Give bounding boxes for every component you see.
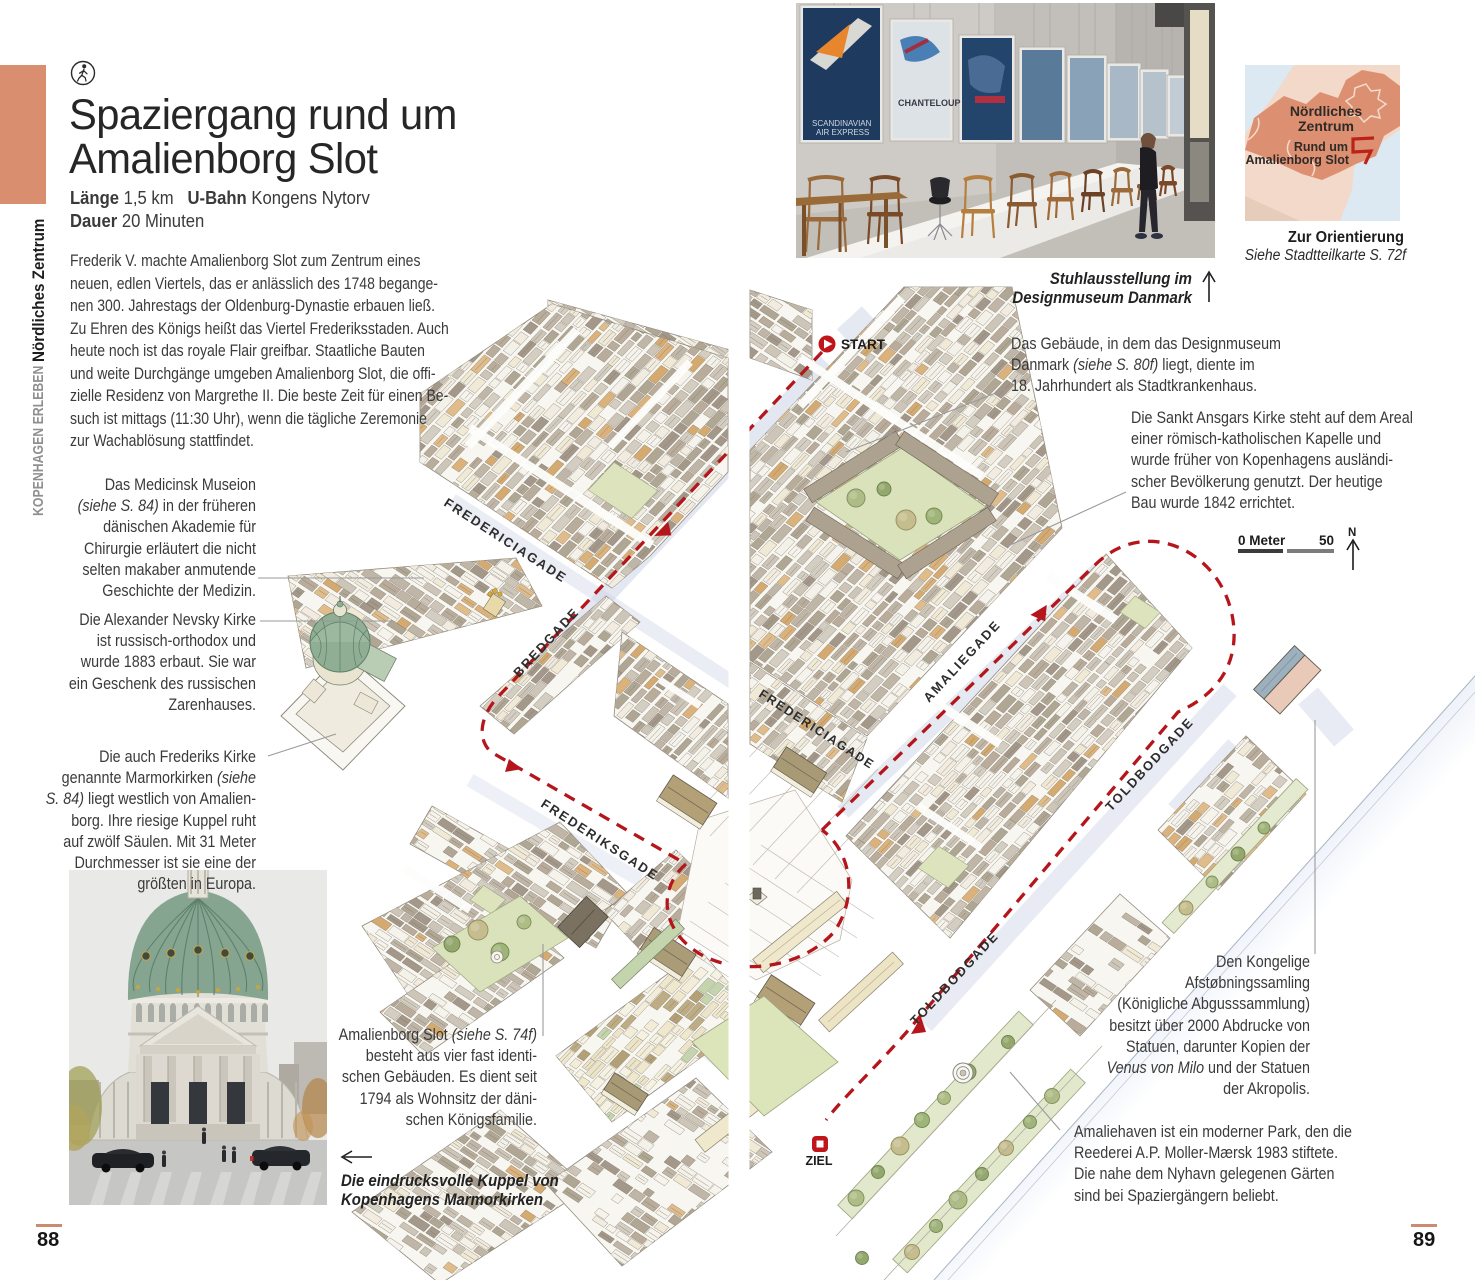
svg-text:SCANDINAVIAN: SCANDINAVIAN <box>812 119 872 128</box>
svg-text:N: N <box>1348 527 1356 539</box>
svg-text:CHANTELOUP: CHANTELOUP <box>898 98 961 108</box>
svg-text:START: START <box>841 337 886 352</box>
svg-text:Rund um: Rund um <box>1294 140 1348 154</box>
svg-text:Zentrum: Zentrum <box>1298 118 1354 134</box>
svg-text:ZIEL: ZIEL <box>805 1154 832 1168</box>
svg-text:Nördliches: Nördliches <box>1290 103 1363 119</box>
svg-text:50: 50 <box>1319 533 1334 548</box>
svg-text:TOLDBODGADE: TOLDBODGADE <box>907 928 1002 1028</box>
svg-text:AIR EXPRESS: AIR EXPRESS <box>816 128 869 137</box>
svg-text:Amalienborg Slot: Amalienborg Slot <box>1246 153 1350 167</box>
svg-text:0 Meter: 0 Meter <box>1238 533 1286 548</box>
